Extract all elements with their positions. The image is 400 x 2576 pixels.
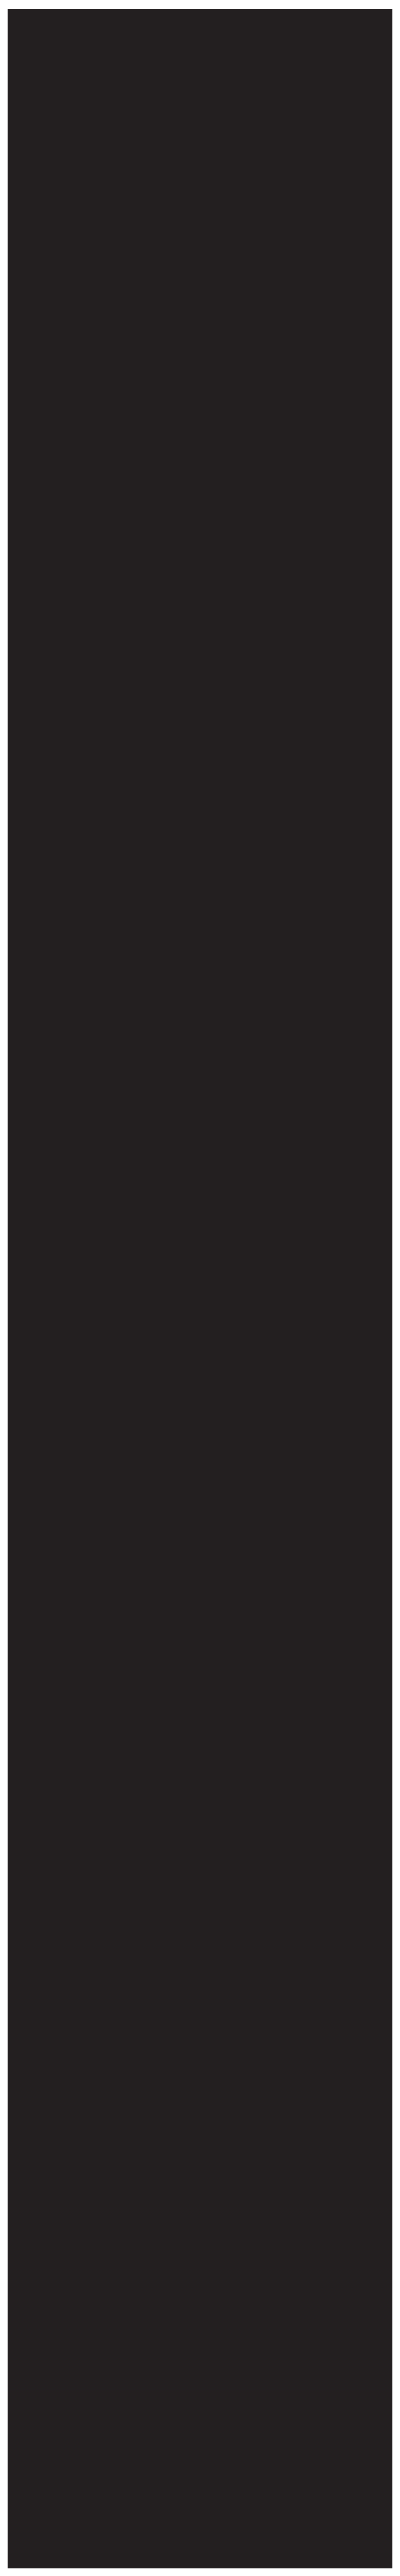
dark-blank-panel [8,9,392,2568]
page-background [0,0,400,2576]
